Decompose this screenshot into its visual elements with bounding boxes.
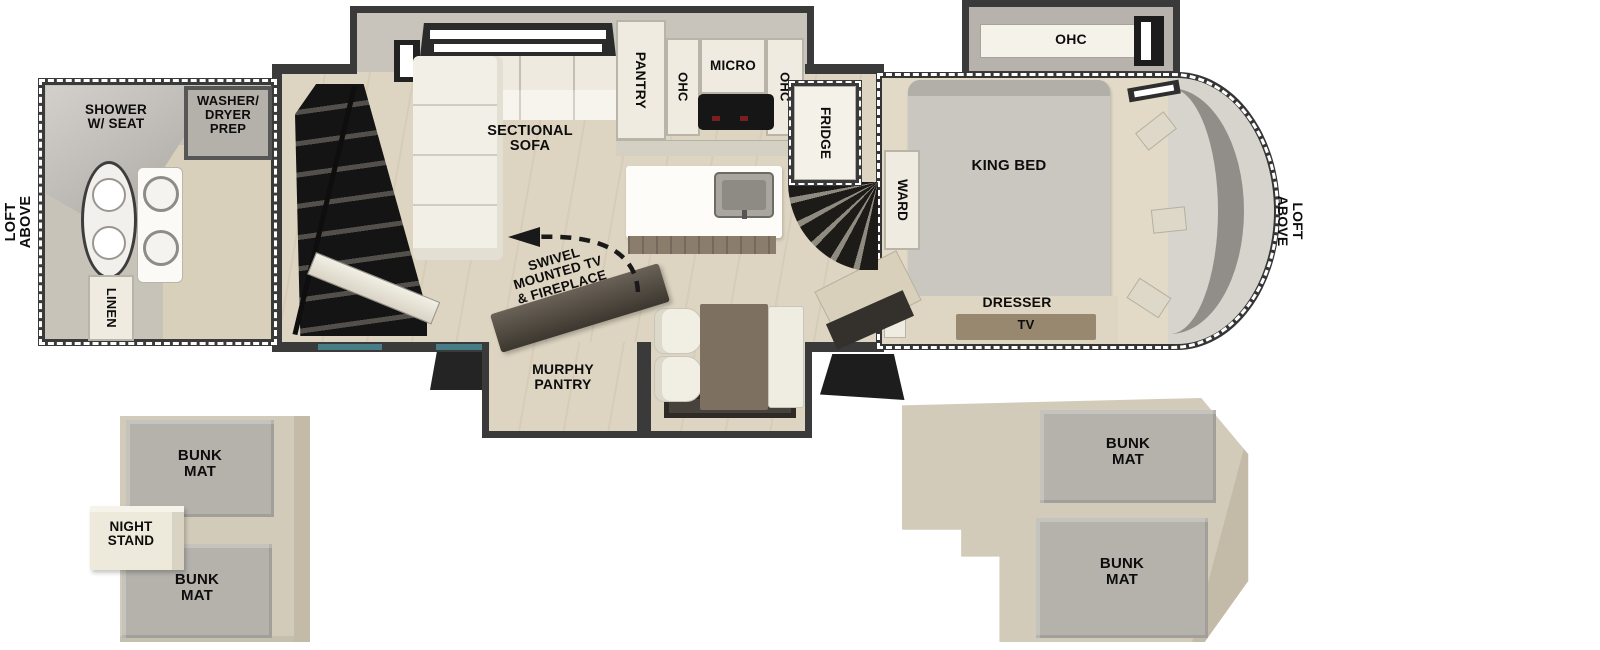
washer-dryer-label: WASHER/ DRYER PREP: [186, 94, 270, 135]
bedroom-ohc-label: OHC: [980, 32, 1162, 47]
ward-label: WARD: [895, 179, 909, 221]
loft-left-bunk-bottom-label: BUNK MAT: [122, 572, 272, 604]
kitchen-counter: [616, 140, 806, 156]
bedroom: KING BED DRESSER TV: [876, 72, 1174, 350]
dinette-chair: [654, 356, 702, 402]
island-sink: [714, 172, 774, 218]
entry-steps: [820, 354, 908, 400]
loft-right-bunk-top-label: BUNK MAT: [1040, 436, 1216, 468]
sink-faucet: [742, 210, 747, 219]
vanity-mirror: [81, 161, 137, 279]
window-slit: [436, 344, 482, 350]
dresser-label: DRESSER: [942, 295, 1092, 310]
shower-label: SHOWER W/ SEAT: [55, 103, 177, 132]
sink-bowl: [143, 230, 179, 266]
wardrobe: WARD: [884, 150, 920, 250]
sink-bowl: [143, 176, 179, 212]
skylight-glass: [434, 44, 602, 52]
king-bed-label: KING BED: [924, 158, 1094, 174]
fridge: FRIDGE: [794, 86, 856, 180]
loft-above-right-label: LOFT ABOVE: [1263, 173, 1305, 269]
floorplan-scene: LOFT ABOVE SHOWER W/ SEAT WASHER/ DRYER …: [0, 0, 1600, 650]
dinette-chair: [654, 308, 702, 354]
double-sink-counter: [137, 167, 183, 283]
wall-top-right: [805, 64, 884, 74]
cap-cushion: [1151, 206, 1187, 233]
sofa-chaise: [413, 56, 503, 256]
murphy-pantry-label: MURPHY PANTRY: [498, 362, 628, 392]
loft-left-bunk-top-label: BUNK MAT: [126, 448, 274, 480]
night-stand-label: NIGHT STAND: [90, 520, 172, 549]
pantry-label: PANTRY: [634, 51, 649, 108]
cooktop-burner: [712, 116, 720, 121]
vanity-bowl: [92, 226, 126, 260]
island-base: [628, 236, 776, 254]
fridge-surround: FRIDGE: [788, 80, 862, 186]
wall-top-left: [272, 64, 357, 74]
microwave-cabinet: MICRO: [700, 38, 766, 94]
vanity-bowl: [92, 178, 126, 212]
dinette-bench: [768, 306, 804, 408]
linen-cabinet: LINEN: [88, 275, 134, 341]
ohc-left-label: OHC: [676, 72, 690, 102]
linen-label: LINEN: [104, 288, 118, 328]
sofa-arm: [413, 248, 503, 260]
loft-right-bunk-bottom-label: BUNK MAT: [1036, 556, 1208, 588]
window-slit: [318, 344, 382, 350]
bathroom-slide: SHOWER W/ SEAT WASHER/ DRYER PREP LINEN: [38, 78, 278, 346]
bedroom-ohc-slide: OHC: [962, 0, 1180, 78]
ohc-cabinet-left: OHC: [666, 38, 700, 136]
micro-label: MICRO: [710, 59, 756, 73]
dinette-table: [700, 304, 768, 410]
bed-headboard: [908, 80, 1110, 96]
swivel-arrow-icon: [496, 220, 646, 298]
fridge-label: FRIDGE: [818, 107, 832, 159]
tv-label: TV: [956, 318, 1096, 332]
loft-above-left-label: LOFT ABOVE: [4, 172, 48, 272]
skylight-glass: [430, 30, 606, 39]
window-glass: [1134, 85, 1174, 98]
sink-basin: [722, 180, 766, 210]
king-bed: [908, 80, 1110, 308]
sofa-label: SECTIONAL SOFA: [452, 124, 608, 155]
window-glass: [400, 45, 413, 77]
cooktop: [698, 94, 774, 130]
pantry-cabinet: PANTRY: [616, 20, 666, 140]
skylight-frame: [420, 23, 616, 57]
